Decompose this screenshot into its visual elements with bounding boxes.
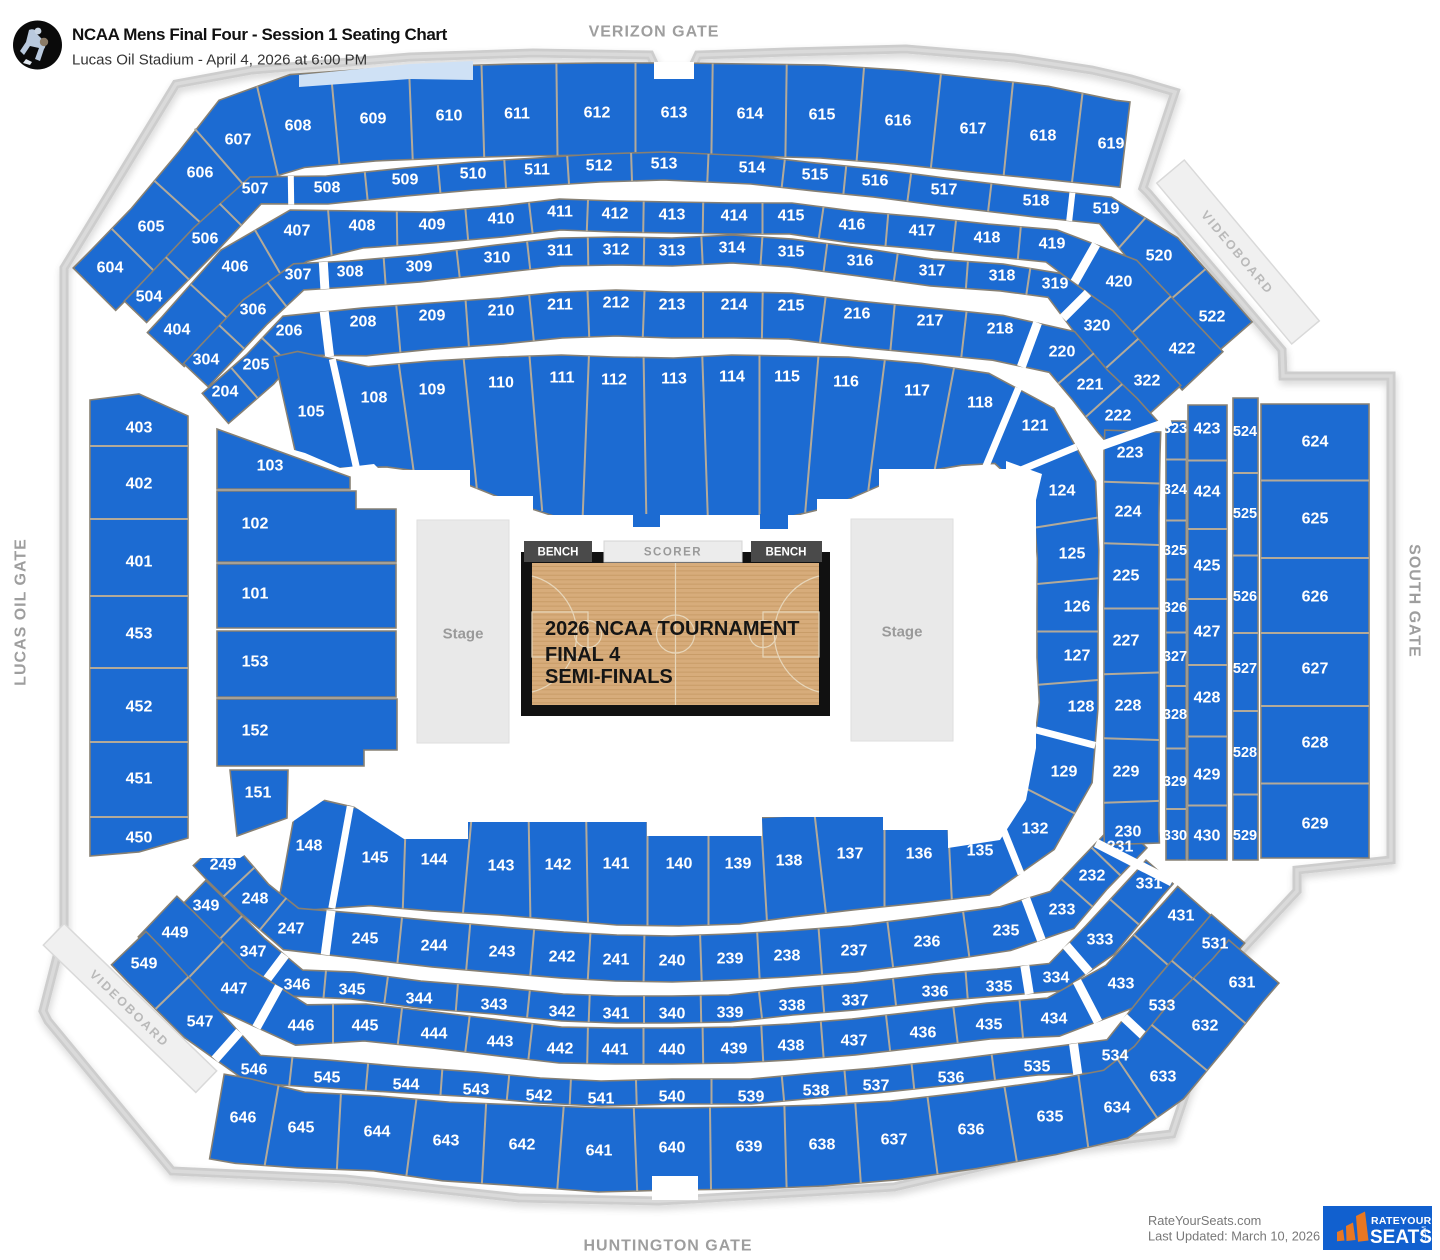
svg-text:RateYourSeats.com: RateYourSeats.com — [1148, 1213, 1261, 1228]
svg-text:528: 528 — [1233, 745, 1257, 761]
svg-text:517: 517 — [931, 182, 958, 199]
svg-text:NCAA Mens Final Four - Session: NCAA Mens Final Four - Session 1 Seating… — [72, 25, 448, 44]
svg-text:222: 222 — [1105, 408, 1132, 425]
svg-text:105: 105 — [298, 404, 325, 421]
svg-text:322: 322 — [1134, 373, 1161, 390]
svg-text:611: 611 — [504, 106, 530, 123]
svg-text:518: 518 — [1023, 193, 1050, 210]
svg-text:116: 116 — [833, 374, 859, 391]
svg-text:112: 112 — [601, 372, 627, 389]
svg-text:231: 231 — [1107, 839, 1134, 856]
svg-text:242: 242 — [549, 949, 576, 966]
svg-text:249: 249 — [210, 857, 237, 874]
svg-text:223: 223 — [1117, 445, 1144, 462]
svg-text:538: 538 — [803, 1083, 830, 1100]
svg-text:145: 145 — [362, 850, 389, 867]
svg-text:639: 639 — [736, 1139, 763, 1156]
svg-text:329: 329 — [1163, 774, 1187, 790]
svg-text:412: 412 — [602, 206, 629, 223]
svg-text:522: 522 — [1199, 309, 1226, 326]
svg-text:628: 628 — [1302, 735, 1329, 752]
svg-text:Stage: Stage — [882, 624, 923, 641]
svg-text:540: 540 — [659, 1089, 686, 1106]
svg-text:510: 510 — [460, 166, 487, 183]
svg-text:247: 247 — [278, 921, 305, 938]
svg-text:418: 418 — [974, 230, 1001, 247]
svg-text:539: 539 — [738, 1089, 765, 1106]
svg-text:328: 328 — [1163, 707, 1187, 723]
svg-text:347: 347 — [240, 944, 267, 961]
svg-text:225: 225 — [1113, 568, 1140, 585]
svg-text:336: 336 — [922, 984, 949, 1001]
svg-text:640: 640 — [659, 1140, 686, 1157]
svg-text:424: 424 — [1194, 484, 1221, 501]
svg-text:445: 445 — [352, 1018, 379, 1035]
svg-text:514: 514 — [739, 160, 766, 177]
svg-text:327: 327 — [1163, 649, 1187, 665]
svg-text:215: 215 — [778, 298, 805, 315]
svg-text:216: 216 — [844, 306, 871, 323]
svg-text:443: 443 — [487, 1034, 514, 1051]
svg-text:536: 536 — [938, 1070, 965, 1087]
svg-text:140: 140 — [666, 856, 693, 873]
svg-text:420: 420 — [1106, 274, 1133, 291]
svg-text:535: 535 — [1024, 1059, 1051, 1076]
svg-text:306: 306 — [240, 302, 267, 319]
svg-text:210: 210 — [488, 303, 515, 320]
svg-text:239: 239 — [717, 951, 744, 968]
svg-text:319: 319 — [1042, 276, 1069, 293]
svg-text:437: 437 — [841, 1033, 868, 1050]
svg-text:330: 330 — [1163, 828, 1187, 844]
svg-text:433: 433 — [1108, 976, 1135, 993]
svg-text:316: 316 — [847, 253, 874, 270]
svg-text:608: 608 — [285, 118, 312, 135]
svg-text:248: 248 — [242, 891, 269, 908]
svg-text:524: 524 — [1233, 424, 1257, 440]
svg-text:610: 610 — [436, 108, 463, 125]
svg-text:613: 613 — [661, 105, 688, 122]
svg-text:101: 101 — [242, 586, 269, 603]
svg-text:151: 151 — [245, 785, 272, 802]
svg-text:506: 506 — [192, 231, 219, 248]
svg-text:311: 311 — [547, 243, 573, 260]
svg-text:304: 304 — [193, 352, 220, 369]
svg-text:218: 218 — [987, 321, 1014, 338]
svg-text:121: 121 — [1022, 418, 1049, 435]
svg-text:605: 605 — [138, 219, 165, 236]
svg-text:118: 118 — [967, 395, 993, 412]
svg-text:544: 544 — [393, 1077, 420, 1094]
svg-text:434: 434 — [1041, 1011, 1068, 1028]
svg-text:449: 449 — [162, 925, 189, 942]
svg-text:113: 113 — [661, 371, 687, 388]
svg-text:117: 117 — [904, 383, 930, 400]
svg-text:452: 452 — [126, 699, 153, 716]
svg-text:229: 229 — [1113, 764, 1140, 781]
svg-text:LUCAS OIL GATE: LUCAS OIL GATE — [13, 538, 30, 686]
svg-text:343: 343 — [481, 997, 508, 1014]
svg-text:214: 214 — [721, 297, 748, 314]
svg-text:529: 529 — [1233, 828, 1257, 844]
svg-text:136: 136 — [906, 846, 933, 863]
svg-text:315: 315 — [778, 244, 805, 261]
svg-text:511: 511 — [524, 162, 550, 179]
svg-text:235: 235 — [993, 923, 1020, 940]
svg-text:439: 439 — [721, 1041, 748, 1058]
svg-text:241: 241 — [603, 952, 630, 969]
svg-text:416: 416 — [839, 217, 866, 234]
svg-text:2026 NCAA TOURNAMENT: 2026 NCAA TOURNAMENT — [545, 618, 799, 640]
svg-text:139: 139 — [725, 856, 752, 873]
svg-text:643: 643 — [433, 1133, 460, 1150]
svg-text:446: 446 — [288, 1018, 315, 1035]
svg-text:422: 422 — [1169, 341, 1196, 358]
svg-text:604: 604 — [97, 260, 124, 277]
svg-text:419: 419 — [1039, 236, 1066, 253]
svg-text:Last Updated: March 10, 2026: Last Updated: March 10, 2026 — [1148, 1229, 1320, 1244]
svg-text:349: 349 — [193, 898, 220, 915]
svg-text:114: 114 — [719, 369, 745, 386]
svg-text:313: 313 — [659, 243, 686, 260]
svg-text:128: 128 — [1068, 699, 1095, 716]
svg-text:331: 331 — [1136, 876, 1163, 893]
svg-text:341: 341 — [603, 1006, 630, 1023]
svg-text:318: 318 — [989, 268, 1016, 285]
svg-text:537: 537 — [863, 1078, 890, 1095]
svg-text:212: 212 — [603, 295, 630, 312]
svg-text:144: 144 — [421, 852, 448, 869]
svg-text:403: 403 — [126, 420, 153, 437]
svg-text:438: 438 — [778, 1038, 805, 1055]
svg-text:312: 312 — [603, 242, 630, 259]
svg-text:407: 407 — [284, 223, 311, 240]
svg-text:414: 414 — [721, 208, 748, 225]
svg-text:141: 141 — [603, 856, 630, 873]
svg-text:142: 142 — [545, 857, 572, 874]
svg-text:614: 614 — [737, 106, 764, 123]
svg-text:342: 342 — [549, 1004, 576, 1021]
svg-text:333: 333 — [1087, 932, 1114, 949]
svg-text:612: 612 — [584, 105, 611, 122]
svg-text:110: 110 — [488, 375, 514, 392]
svg-text:230: 230 — [1115, 824, 1142, 841]
svg-text:324: 324 — [1163, 482, 1187, 498]
svg-text:642: 642 — [509, 1137, 536, 1154]
svg-text:410: 410 — [488, 211, 515, 228]
svg-text:425: 425 — [1194, 558, 1221, 575]
svg-text:409: 409 — [419, 217, 446, 234]
svg-text:629: 629 — [1302, 816, 1329, 833]
svg-text:307: 307 — [285, 267, 312, 284]
svg-text:344: 344 — [406, 991, 433, 1008]
svg-text:228: 228 — [1115, 698, 1142, 715]
svg-text:636: 636 — [958, 1122, 985, 1139]
svg-text:429: 429 — [1194, 767, 1221, 784]
svg-text:519: 519 — [1093, 201, 1120, 218]
svg-text:644: 644 — [364, 1124, 391, 1141]
svg-text:515: 515 — [802, 167, 829, 184]
svg-text:310: 310 — [484, 250, 511, 267]
svg-text:337: 337 — [842, 993, 869, 1010]
svg-text:633: 633 — [1150, 1069, 1177, 1086]
svg-text:334: 334 — [1043, 970, 1070, 987]
svg-text:325: 325 — [1163, 543, 1187, 559]
svg-text:335: 335 — [986, 979, 1013, 996]
svg-text:240: 240 — [659, 953, 686, 970]
svg-text:340: 340 — [659, 1006, 686, 1023]
svg-text:RATEYOUR: RATEYOUR — [1371, 1215, 1432, 1227]
svg-text:423: 423 — [1194, 421, 1221, 438]
svg-text:531: 531 — [1202, 936, 1229, 953]
svg-text:427: 427 — [1194, 624, 1221, 641]
svg-text:435: 435 — [976, 1017, 1003, 1034]
svg-text:243: 243 — [489, 944, 516, 961]
svg-text:545: 545 — [314, 1070, 341, 1087]
svg-text:209: 209 — [419, 308, 446, 325]
svg-text:618: 618 — [1030, 128, 1057, 145]
svg-text:152: 152 — [242, 723, 269, 740]
svg-text:245: 245 — [352, 931, 379, 948]
svg-text:541: 541 — [588, 1091, 615, 1108]
svg-text:526: 526 — [1233, 589, 1257, 605]
svg-text:415: 415 — [778, 208, 805, 225]
svg-text:132: 132 — [1022, 821, 1049, 838]
svg-text:143: 143 — [488, 858, 515, 875]
svg-text:543: 543 — [463, 1082, 490, 1099]
svg-text:606: 606 — [187, 165, 214, 182]
svg-text:631: 631 — [1229, 975, 1256, 992]
svg-text:507: 507 — [242, 181, 269, 198]
svg-text:402: 402 — [126, 476, 153, 493]
svg-text:338: 338 — [779, 998, 806, 1015]
svg-text:109: 109 — [419, 382, 446, 399]
svg-text:320: 320 — [1084, 318, 1111, 335]
svg-text:SEMI-FINALS: SEMI-FINALS — [545, 666, 673, 688]
svg-text:129: 129 — [1051, 764, 1078, 781]
svg-text:626: 626 — [1302, 589, 1329, 606]
svg-text:232: 232 — [1079, 868, 1106, 885]
svg-text:431: 431 — [1168, 908, 1195, 925]
svg-text:346: 346 — [284, 977, 311, 994]
svg-text:625: 625 — [1302, 511, 1329, 528]
svg-text:645: 645 — [288, 1120, 315, 1137]
svg-text:607: 607 — [225, 132, 252, 149]
svg-text:102: 102 — [242, 516, 269, 533]
svg-text:238: 238 — [774, 948, 801, 965]
svg-text:138: 138 — [776, 853, 803, 870]
svg-text:534: 534 — [1102, 1048, 1129, 1065]
svg-text:546: 546 — [241, 1062, 268, 1079]
svg-text:126: 126 — [1064, 599, 1091, 616]
svg-text:508: 508 — [314, 180, 341, 197]
svg-text:204: 204 — [212, 384, 239, 401]
svg-text:227: 227 — [1113, 633, 1140, 650]
svg-text:617: 617 — [960, 121, 987, 138]
svg-text:SCORER: SCORER — [644, 547, 702, 559]
svg-text:236: 236 — [914, 934, 941, 951]
svg-text:615: 615 — [809, 107, 836, 124]
svg-text:237: 237 — [841, 943, 868, 960]
svg-text:211: 211 — [547, 297, 573, 314]
svg-text:609: 609 — [360, 111, 387, 128]
svg-text:413: 413 — [659, 207, 686, 224]
svg-text:148: 148 — [296, 838, 323, 855]
svg-text:124: 124 — [1049, 483, 1076, 500]
svg-text:513: 513 — [651, 156, 678, 173]
svg-text:153: 153 — [242, 654, 269, 671]
svg-text:339: 339 — [717, 1005, 744, 1022]
svg-text:646: 646 — [230, 1110, 257, 1127]
svg-text:BENCH: BENCH — [538, 547, 579, 559]
svg-text:441: 441 — [602, 1042, 629, 1059]
svg-text:323: 323 — [1163, 421, 1187, 437]
svg-text:127: 127 — [1064, 648, 1091, 665]
svg-text:632: 632 — [1192, 1018, 1219, 1035]
svg-text:436: 436 — [910, 1025, 937, 1042]
svg-text:440: 440 — [659, 1042, 686, 1059]
svg-text:115: 115 — [774, 369, 800, 386]
svg-text:Stage: Stage — [443, 626, 484, 643]
svg-text:314: 314 — [719, 240, 746, 257]
svg-text:HUNTINGTON GATE: HUNTINGTON GATE — [583, 1238, 752, 1255]
svg-text:450: 450 — [126, 830, 153, 847]
svg-text:137: 137 — [837, 846, 864, 863]
svg-text:635: 635 — [1037, 1109, 1064, 1126]
svg-text:428: 428 — [1194, 690, 1221, 707]
svg-text:447: 447 — [221, 981, 248, 998]
svg-text:619: 619 — [1098, 136, 1125, 153]
svg-text:509: 509 — [392, 172, 419, 189]
svg-text:512: 512 — [586, 158, 613, 175]
svg-text:205: 205 — [243, 357, 270, 374]
svg-text:525: 525 — [1233, 506, 1257, 522]
svg-text:404: 404 — [164, 322, 191, 339]
svg-text:317: 317 — [919, 263, 946, 280]
svg-text:444: 444 — [421, 1026, 448, 1043]
svg-text:220: 220 — [1049, 344, 1076, 361]
svg-text:401: 401 — [126, 554, 153, 571]
svg-text:308: 308 — [337, 264, 364, 281]
svg-text:408: 408 — [349, 218, 376, 235]
svg-text:326: 326 — [1163, 600, 1187, 616]
svg-text:637: 637 — [881, 1132, 908, 1149]
svg-text:.COM: .COM — [1421, 1226, 1428, 1243]
svg-text:345: 345 — [339, 982, 366, 999]
svg-text:411: 411 — [547, 204, 573, 221]
svg-text:Lucas Oil Stadium - April 4, 2: Lucas Oil Stadium - April 4, 2026 at 6:0… — [72, 52, 367, 69]
svg-text:520: 520 — [1146, 248, 1173, 265]
svg-text:111: 111 — [550, 370, 575, 387]
svg-text:516: 516 — [862, 173, 889, 190]
svg-text:451: 451 — [126, 771, 153, 788]
svg-text:224: 224 — [1115, 504, 1142, 521]
svg-text:208: 208 — [350, 314, 377, 331]
svg-text:244: 244 — [421, 938, 448, 955]
svg-text:549: 549 — [131, 956, 158, 973]
svg-text:616: 616 — [885, 113, 912, 130]
svg-text:217: 217 — [917, 313, 944, 330]
svg-text:135: 135 — [967, 843, 994, 860]
svg-text:641: 641 — [586, 1143, 613, 1160]
svg-text:108: 108 — [361, 390, 388, 407]
svg-text:406: 406 — [222, 259, 249, 276]
svg-text:638: 638 — [809, 1137, 836, 1154]
svg-text:624: 624 — [1302, 434, 1329, 451]
svg-text:206: 206 — [276, 323, 303, 340]
svg-text:BENCH: BENCH — [766, 547, 807, 559]
svg-text:417: 417 — [909, 223, 936, 240]
svg-text:213: 213 — [659, 297, 686, 314]
svg-text:547: 547 — [187, 1014, 214, 1031]
svg-text:504: 504 — [136, 289, 163, 306]
svg-text:527: 527 — [1233, 661, 1257, 677]
svg-text:233: 233 — [1049, 902, 1076, 919]
svg-text:SOUTH GATE: SOUTH GATE — [1406, 544, 1423, 658]
svg-text:627: 627 — [1302, 661, 1329, 678]
svg-text:VERIZON GATE: VERIZON GATE — [589, 24, 720, 41]
svg-text:634: 634 — [1104, 1100, 1131, 1117]
svg-text:221: 221 — [1077, 377, 1104, 394]
svg-text:125: 125 — [1059, 546, 1086, 563]
svg-text:103: 103 — [257, 458, 284, 475]
svg-text:430: 430 — [1194, 828, 1221, 845]
svg-text:453: 453 — [126, 626, 153, 643]
svg-text:309: 309 — [406, 259, 433, 276]
svg-text:442: 442 — [547, 1041, 574, 1058]
svg-text:542: 542 — [526, 1088, 553, 1105]
svg-text:FINAL 4: FINAL 4 — [545, 644, 621, 666]
svg-text:533: 533 — [1149, 998, 1176, 1015]
